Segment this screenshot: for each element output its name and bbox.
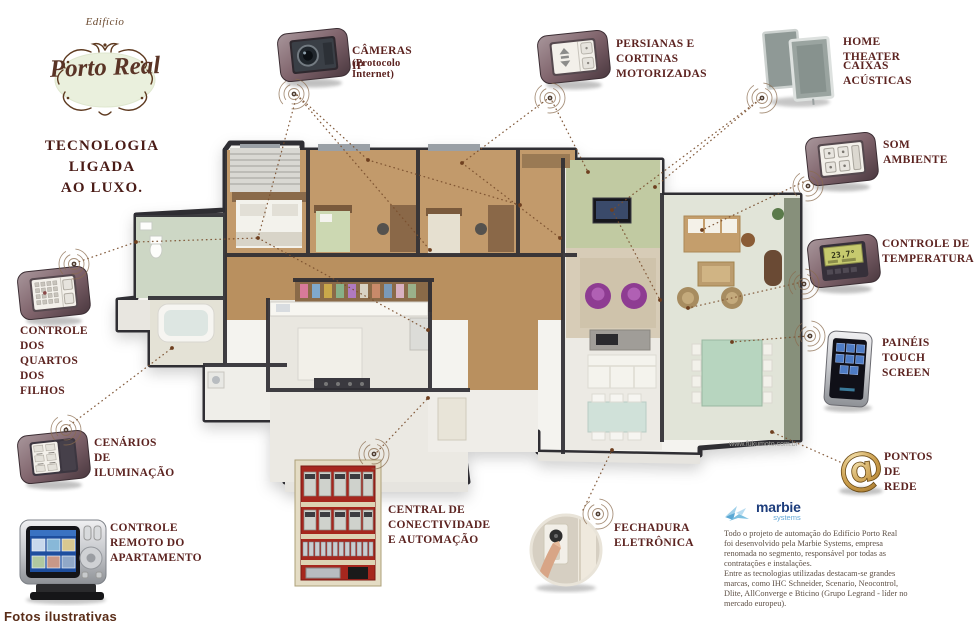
persianas-label: PERSIANAS E CORTINAS MOTORIZADAS bbox=[616, 37, 707, 82]
signal-rings-icon bbox=[744, 80, 780, 116]
signal-rings-icon bbox=[532, 80, 568, 116]
svg-text:@: @ bbox=[834, 440, 887, 498]
marbie-block: marbie systems Todo o projeto de automaç… bbox=[724, 500, 976, 609]
touchscreen-remote-icon bbox=[10, 512, 122, 606]
temperatura-label: CONTROLE DE TEMPERATURA bbox=[882, 237, 974, 267]
tagline: TECNOLOGIA LIGADA AO LUXO. bbox=[12, 136, 192, 199]
caixas-acusticas-label: CAIXAS ACÚSTICAS bbox=[843, 59, 912, 89]
signal-rings-icon bbox=[786, 266, 822, 302]
marbie-paragraph-1: Todo o projeto de automação do Edifício … bbox=[724, 529, 974, 569]
tagline-line2: AO LUXO. bbox=[12, 178, 192, 199]
signal-rings-icon bbox=[580, 496, 616, 532]
tagline-line1: TECNOLOGIA LIGADA bbox=[12, 136, 192, 178]
signal-rings-icon bbox=[48, 412, 84, 448]
porto-real-logo: Edifício Porto Real bbox=[25, 16, 185, 128]
som-ambiente-label: SOM AMBIENTE bbox=[883, 138, 948, 168]
fechadura-label: FECHADURA ELETRÔNICA bbox=[614, 521, 694, 551]
touch-screen-label: PAINÉIS TOUCH SCREEN bbox=[882, 336, 930, 381]
stairs bbox=[230, 148, 300, 192]
quartos-label: CONTROLE DOS QUARTOS DOS FILHOS bbox=[20, 324, 88, 399]
central-label: CENTRAL DE CONECTIVIDADE E AUTOMAÇÃO bbox=[388, 503, 490, 548]
logo-edificio-text: Edifício bbox=[30, 16, 180, 28]
cenarios-label: CENÁRIOS DE ILUMINAÇÃO bbox=[94, 436, 174, 481]
floorplan-render: www.fukumoto.com.br bbox=[100, 128, 810, 500]
automation-cabinet-icon bbox=[290, 456, 388, 592]
marbie-logo-icon bbox=[724, 504, 752, 522]
floorplan-watermark: www.fukumoto.com.br bbox=[728, 441, 799, 448]
remoto-label: CONTROLE REMOTO DO APARTAMENTO bbox=[110, 521, 202, 566]
pontos-rede-label: PONTOS DE REDE bbox=[884, 450, 933, 495]
logo-name-text: Porto Real bbox=[25, 51, 186, 85]
cameras-sublabel: (Protocolo Internet) bbox=[352, 58, 400, 80]
brochure-canvas: www.fukumoto.com.br Edifício bbox=[0, 0, 976, 631]
marbie-paragraph-2: Entre as tecnologias utilizadas destacam… bbox=[724, 569, 974, 609]
signal-rings-icon bbox=[792, 318, 828, 354]
signal-rings-icon bbox=[356, 436, 392, 472]
marbie-subname: systems bbox=[756, 514, 801, 522]
signal-rings-icon bbox=[276, 76, 312, 112]
footer-note: Fotos ilustrativas bbox=[4, 609, 117, 624]
marbie-name: marbie bbox=[756, 500, 801, 514]
signal-rings-icon bbox=[56, 246, 92, 282]
signal-rings-icon bbox=[790, 168, 826, 204]
